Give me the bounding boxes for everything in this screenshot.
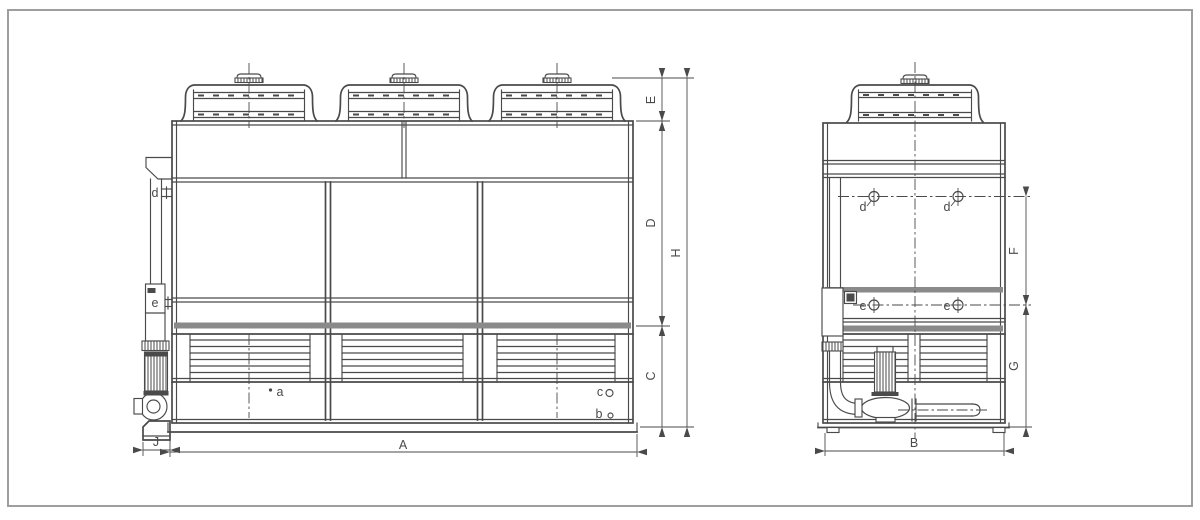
connection-stub-e bbox=[165, 297, 172, 309]
port-label-d-front: d bbox=[152, 186, 159, 200]
dim-label-G: G bbox=[1007, 361, 1021, 371]
dim-label-C: C bbox=[644, 371, 658, 380]
connection-point-a bbox=[269, 388, 272, 391]
dim-label-D: D bbox=[644, 218, 658, 227]
port-label-b: b bbox=[596, 407, 603, 421]
pump-side bbox=[855, 347, 988, 423]
dim-label-A: A bbox=[399, 438, 408, 452]
base-side bbox=[818, 423, 1009, 433]
front-view: a c b d e bbox=[134, 63, 694, 457]
side-view: d d e e bbox=[818, 62, 1032, 456]
base-foot bbox=[993, 428, 1005, 433]
dim-label-B: B bbox=[910, 436, 918, 450]
drawing-canvas: a c b d e bbox=[0, 0, 1200, 520]
casing-front bbox=[172, 121, 633, 423]
discharge-pipe bbox=[898, 399, 988, 421]
fan-assembly-2 bbox=[336, 63, 472, 128]
cooling-tower-technical-drawing: a c b d e bbox=[0, 0, 1200, 520]
dim-label-E: E bbox=[644, 96, 658, 104]
basin-front: a c b bbox=[172, 385, 633, 421]
air-inlet-louvers-front bbox=[172, 334, 633, 418]
dim-label-H: H bbox=[669, 248, 683, 257]
pump-column-front: d e bbox=[134, 158, 172, 421]
dim-label-J: J bbox=[153, 435, 159, 449]
dim-label-F: F bbox=[1007, 247, 1021, 255]
pump-volute bbox=[140, 393, 167, 420]
port-label-c: c bbox=[597, 385, 603, 399]
pump-volute bbox=[862, 398, 910, 419]
fan-assembly-1 bbox=[181, 63, 317, 128]
overflow-funnel bbox=[146, 158, 172, 180]
pipe-flange bbox=[822, 342, 843, 351]
connection-stub-d bbox=[162, 187, 173, 199]
fan-assembly-3 bbox=[489, 63, 625, 128]
port-label-a: a bbox=[277, 385, 284, 399]
port-label-e-front: e bbox=[152, 296, 159, 310]
pump-motor bbox=[875, 352, 896, 392]
port-label-d-side-right: d bbox=[944, 200, 951, 214]
louver-slats bbox=[190, 340, 615, 373]
pump-flange bbox=[142, 341, 169, 351]
pump-motor bbox=[145, 352, 168, 391]
connection-point-b bbox=[608, 413, 613, 418]
dimensions-front: E D C H A J bbox=[143, 78, 694, 457]
air-inlet-louvers-side bbox=[823, 334, 1005, 420]
port-label-e-side-left: e bbox=[860, 299, 867, 313]
port-label-d-side-left: d bbox=[860, 200, 867, 214]
connections-side: d d e e bbox=[838, 188, 1031, 313]
base-foot bbox=[827, 428, 839, 433]
port-label-e-side-right: e bbox=[944, 299, 951, 313]
connection-point-c bbox=[606, 390, 613, 397]
